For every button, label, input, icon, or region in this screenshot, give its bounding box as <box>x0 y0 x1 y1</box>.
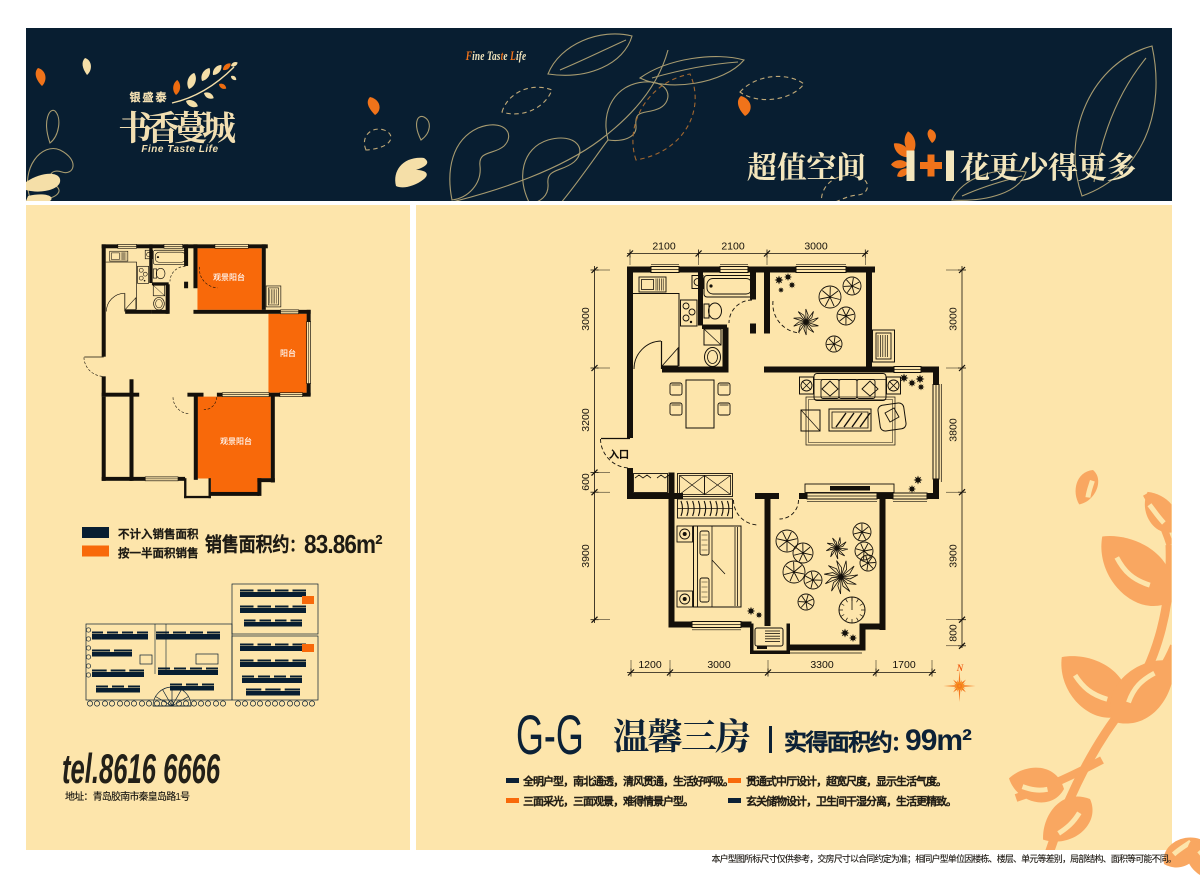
svg-text:3200: 3200 <box>580 408 592 432</box>
svg-text:3800: 3800 <box>948 418 960 442</box>
svg-text:800: 800 <box>948 624 960 642</box>
svg-text:1700: 1700 <box>892 659 916 671</box>
svg-text:3300: 3300 <box>810 659 834 671</box>
svg-text:3000: 3000 <box>580 307 592 331</box>
svg-text:600: 600 <box>580 473 592 491</box>
svg-text:2100: 2100 <box>721 241 745 253</box>
svg-text:3000: 3000 <box>948 307 960 331</box>
svg-text:3000: 3000 <box>804 241 828 253</box>
svg-text:N: N <box>956 663 964 673</box>
svg-text:3000: 3000 <box>707 659 731 671</box>
svg-text:1200: 1200 <box>638 659 662 671</box>
svg-text:3900: 3900 <box>580 544 592 568</box>
svg-text:3900: 3900 <box>948 544 960 568</box>
svg-text:2100: 2100 <box>652 241 676 253</box>
